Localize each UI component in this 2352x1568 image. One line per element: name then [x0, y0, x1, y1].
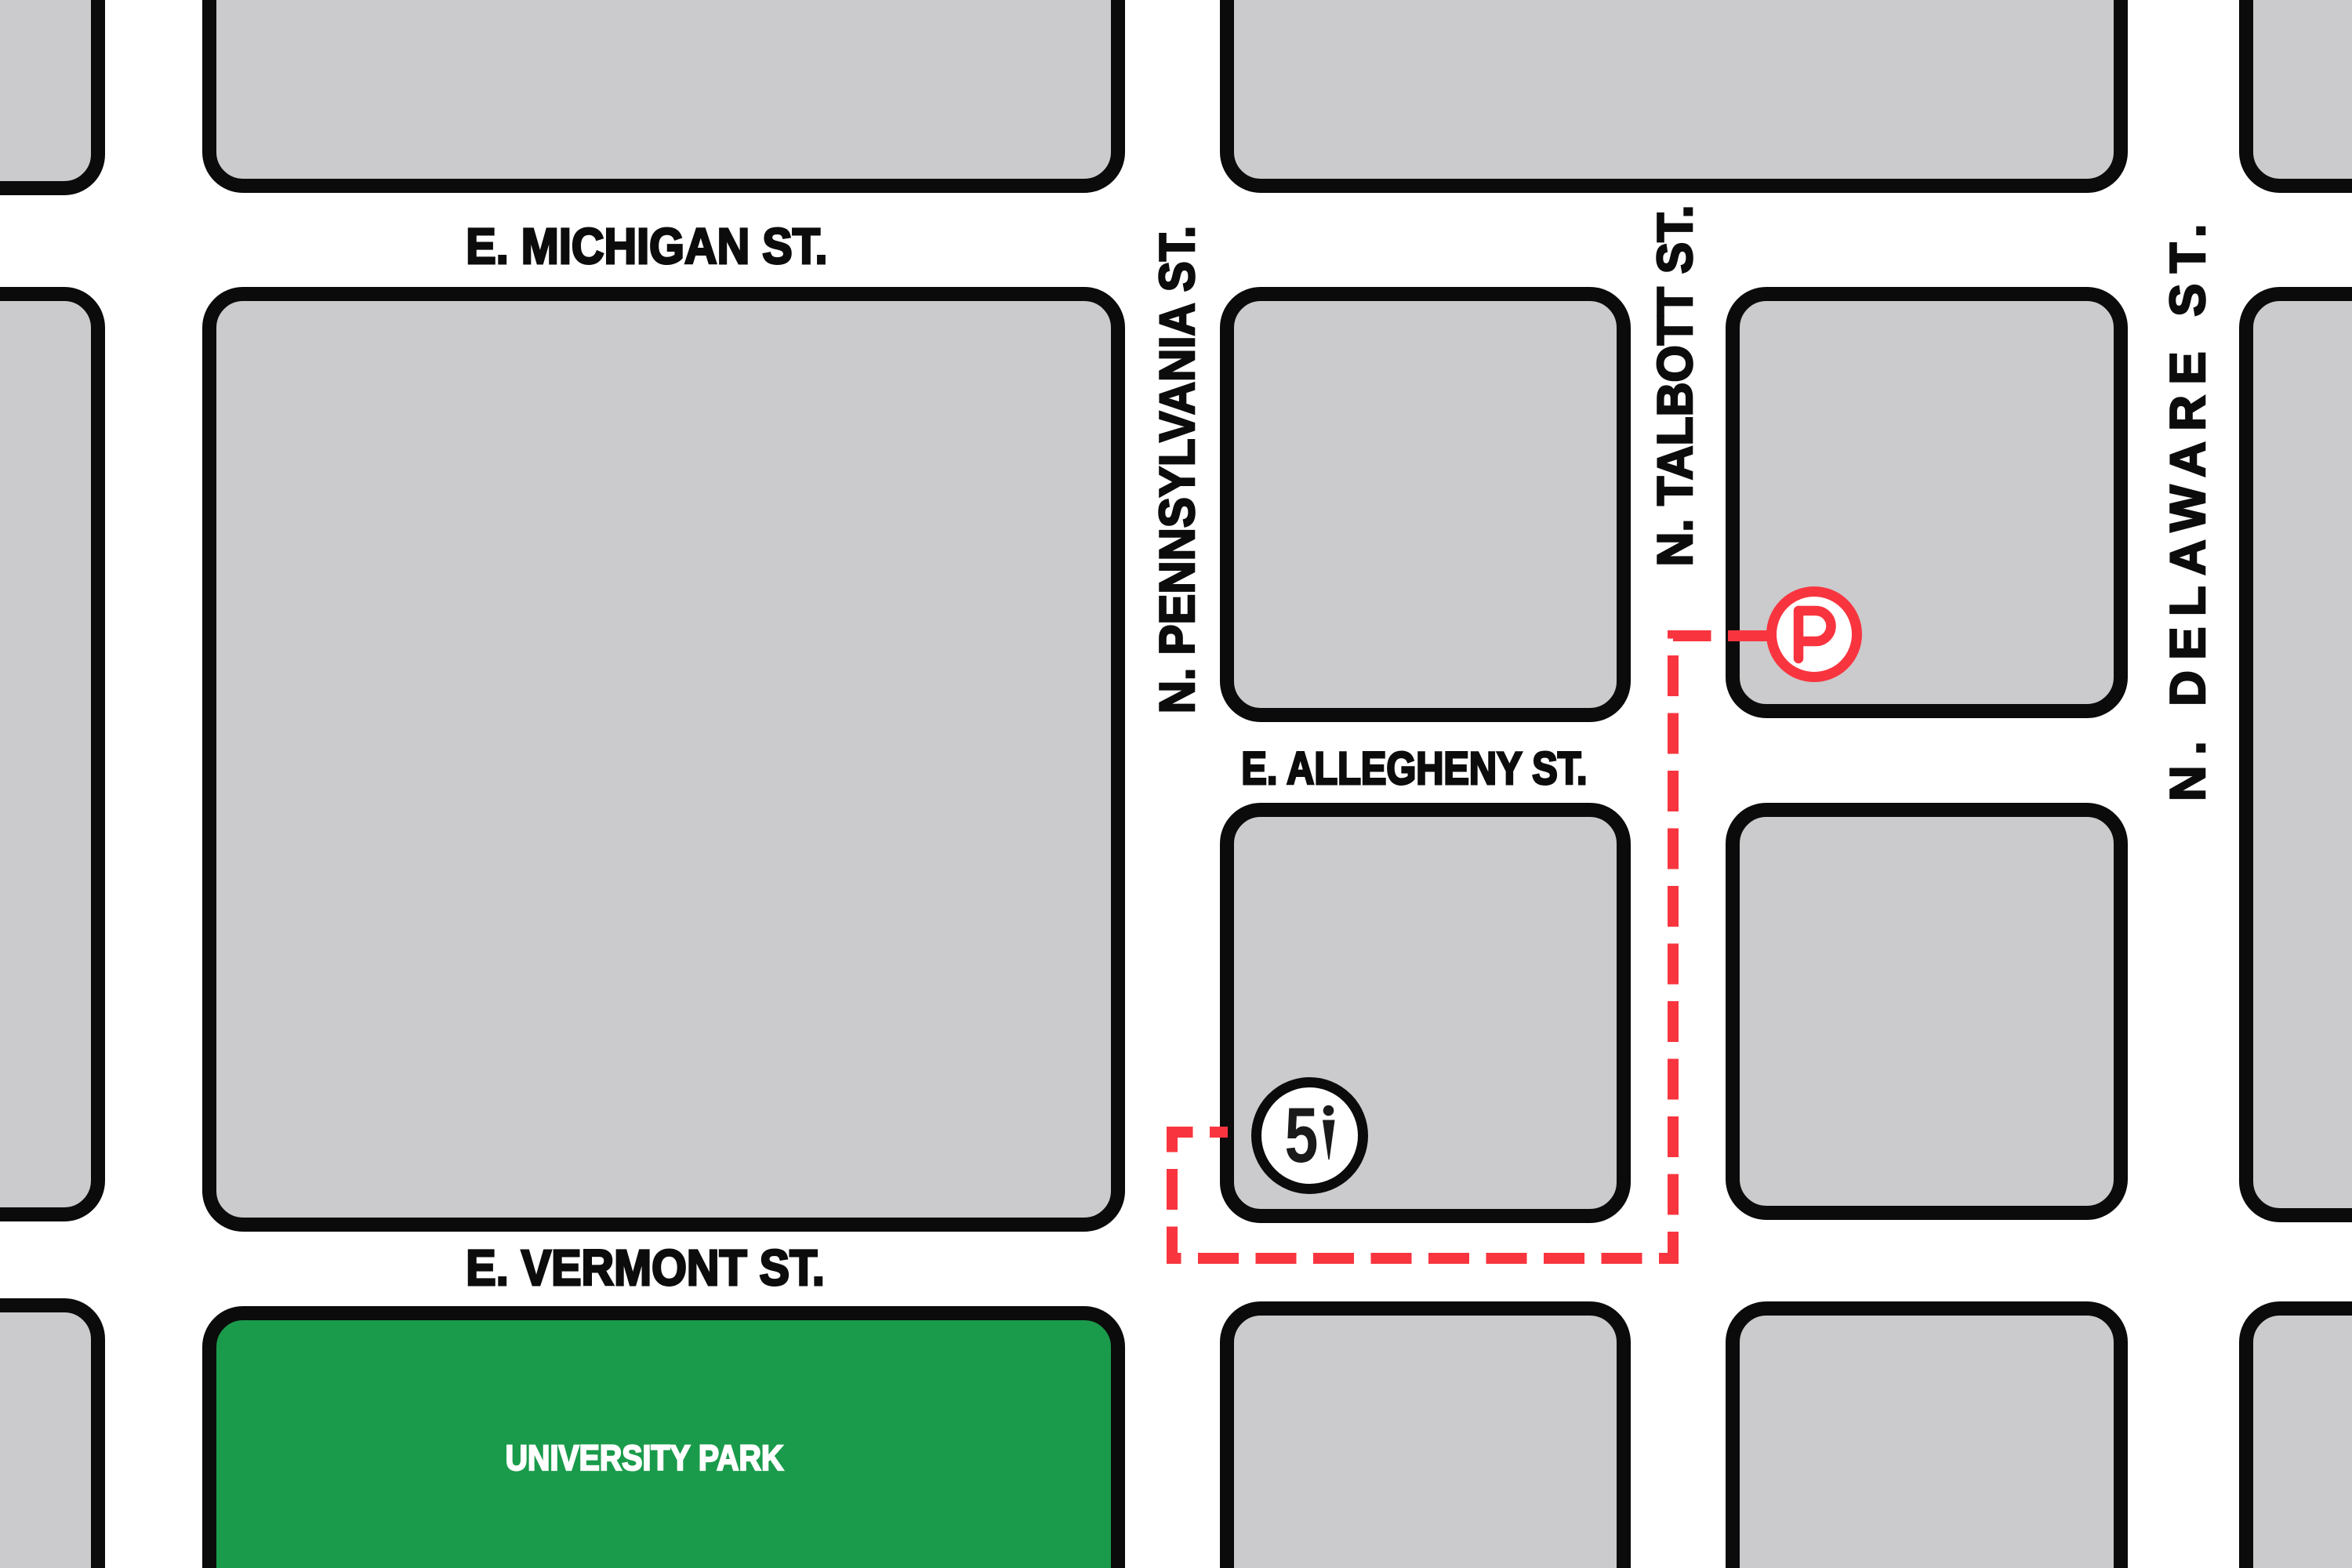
svg-text:E. VERMONT ST.: E. VERMONT ST. — [466, 1240, 825, 1295]
svg-text:N. DELAWARE ST.: N. DELAWARE ST. — [2161, 213, 2216, 801]
svg-text:E. ALLEGHENY ST.: E. ALLEGHENY ST. — [1241, 744, 1587, 794]
svg-text:E. MICHIGAN ST.: E. MICHIGAN ST. — [466, 218, 827, 274]
svg-text:N. PENNSYLVANIA ST.: N. PENNSYLVANIA ST. — [1149, 226, 1204, 714]
svg-text:5: 5 — [1285, 1092, 1319, 1178]
svg-text:UNIVERSITY PARK: UNIVERSITY PARK — [506, 1439, 784, 1478]
svg-text:N. TALBOTT ST.: N. TALBOTT ST. — [1648, 205, 1703, 567]
